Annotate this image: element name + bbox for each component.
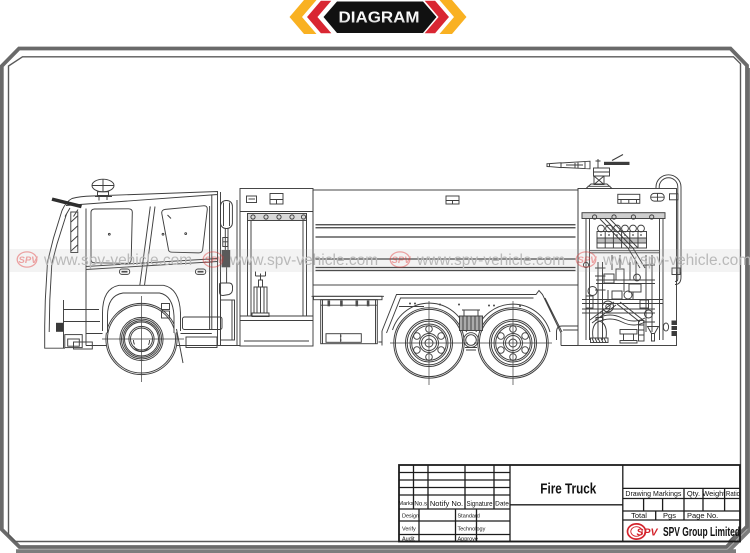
svg-text:No.s: No.s — [414, 501, 427, 508]
svg-text:SPV: SPV — [204, 255, 224, 266]
svg-text:Drawing Markings: Drawing Markings — [625, 489, 681, 498]
svg-text:www.spv-vehicle.com: www.spv-vehicle.com — [602, 252, 750, 269]
svg-text:SPV Group Limited: SPV Group Limited — [663, 525, 740, 539]
svg-text:Date: Date — [495, 501, 509, 508]
svg-text:Qty.: Qty. — [687, 489, 700, 498]
svg-text:Weight: Weight — [702, 489, 726, 498]
svg-text:www.spv-vehicle.com: www.spv-vehicle.com — [43, 252, 192, 269]
svg-text:SPV: SPV — [636, 527, 658, 539]
svg-text:Notify No.: Notify No. — [430, 499, 463, 508]
svg-text:SPV: SPV — [18, 255, 38, 266]
svg-text:Approve: Approve — [458, 537, 479, 543]
svg-text:Design: Design — [402, 514, 419, 520]
svg-text:Technology: Technology — [458, 527, 486, 533]
svg-text:SPV: SPV — [391, 255, 411, 266]
svg-text:www.spv-vehicle.com: www.spv-vehicle.com — [416, 252, 565, 269]
svg-text:Ratio: Ratio — [726, 489, 740, 498]
svg-text:DIAGRAM: DIAGRAM — [339, 9, 420, 26]
svg-text:www.spv-vehicle.com: www.spv-vehicle.com — [229, 252, 378, 269]
svg-text:Signature: Signature — [467, 499, 493, 508]
svg-text:SPV: SPV — [577, 255, 597, 266]
svg-text:Standard: Standard — [458, 514, 480, 520]
svg-text:Fire Truck: Fire Truck — [540, 480, 597, 497]
svg-text:Marks: Marks — [399, 501, 414, 507]
svg-text:Audit: Audit — [402, 537, 415, 543]
svg-text:Verify: Verify — [402, 527, 416, 533]
svg-text:Total: Total — [631, 511, 647, 520]
svg-text:Pgs: Pgs — [663, 511, 676, 520]
svg-text:Page No.: Page No. — [687, 511, 718, 520]
